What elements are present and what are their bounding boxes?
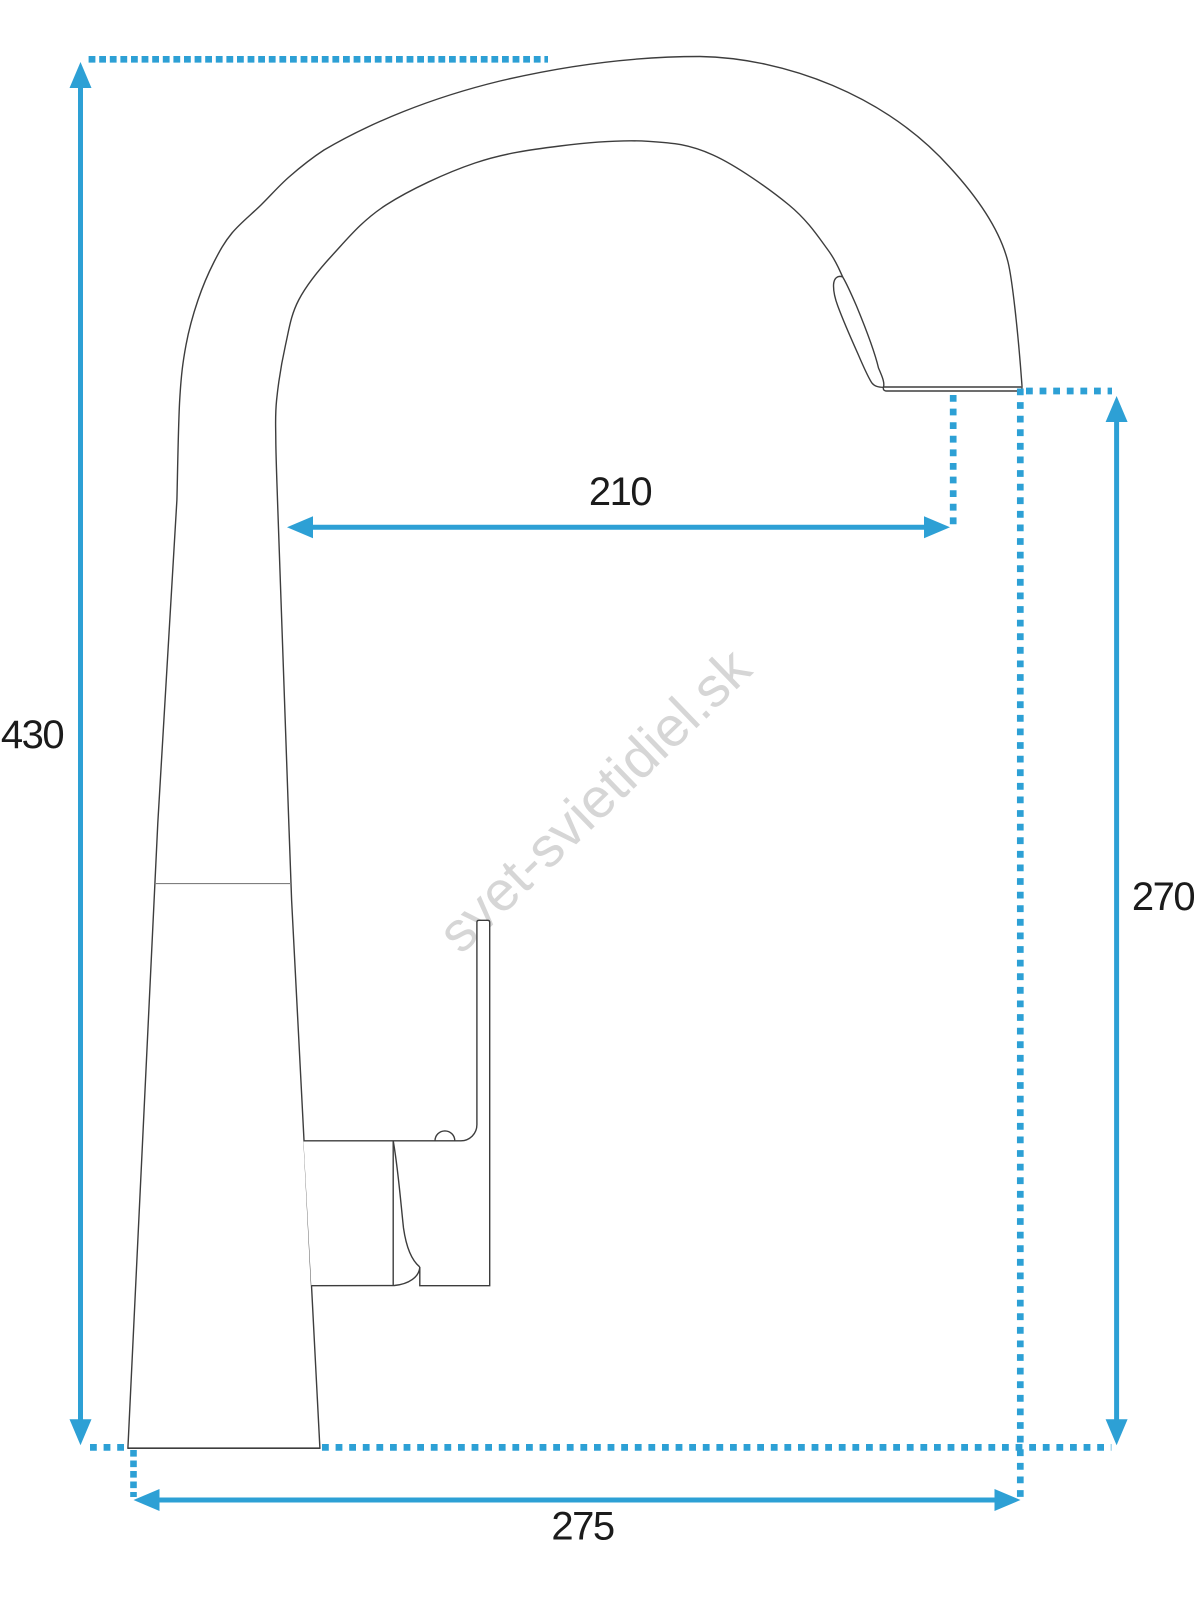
svg-text:270: 270 (1132, 875, 1194, 919)
svg-text:275: 275 (551, 1505, 613, 1549)
svg-text:430: 430 (1, 713, 63, 757)
svg-text:210: 210 (589, 470, 651, 514)
svg-text:svet-svietidiel.sk: svet-svietidiel.sk (425, 635, 763, 964)
